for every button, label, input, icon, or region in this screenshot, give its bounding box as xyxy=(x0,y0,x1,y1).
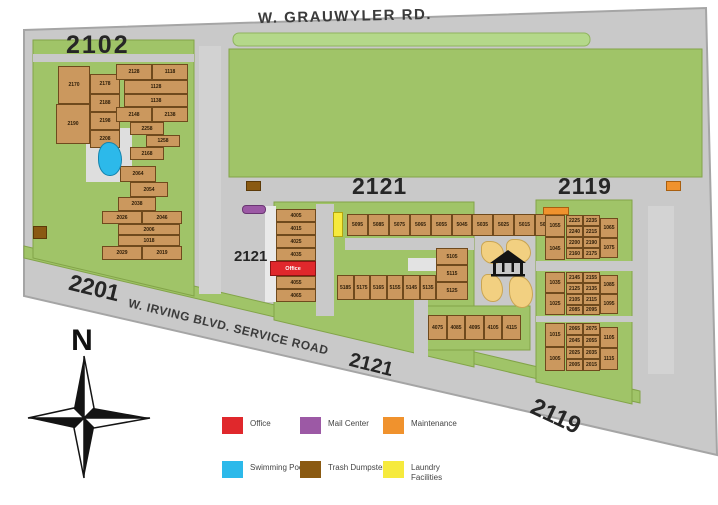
bldg-2119-mid-unit: 2125 xyxy=(566,283,583,294)
bldg-2102-south-unit: 2019 xyxy=(142,246,182,260)
bldg-2121-top-row-unit: 5025 xyxy=(493,214,514,236)
bldg-2121-office-col-unit: 4065 xyxy=(276,289,316,302)
bldg-2121-mid-row-unit: 5165 xyxy=(370,275,387,300)
bldg-2121-top-row-unit: 5055 xyxy=(431,214,452,236)
bldg-2119-south-unit: 1005 xyxy=(545,347,565,371)
bldg-2102-south-unit: 1018 xyxy=(118,235,180,246)
block-label-2102: 2102 xyxy=(66,33,130,58)
bldg-2102-south-unit: 2046 xyxy=(142,211,182,224)
compass-north-label: N xyxy=(71,324,93,357)
road-label-2121: 2121 xyxy=(352,175,407,198)
bldg-2102-east-unit: 2168 xyxy=(130,147,164,160)
legend-item-laundry: Laundry Facilities xyxy=(383,461,469,483)
bldg-2119-mid-unit: 2135 xyxy=(583,283,600,294)
bldg-2102-south-unit: 2054 xyxy=(130,182,168,197)
amenity-area xyxy=(509,276,533,308)
bldg-2121-mid-row-unit: 5105 xyxy=(436,248,468,265)
bldg-2119-north-unit: 1045 xyxy=(545,237,565,260)
bldg-2121-mid-row-unit: 5185 xyxy=(337,275,354,300)
bldg-2102-west-unit: 2190 xyxy=(56,104,90,144)
legend-label: Trash Dumpster xyxy=(328,461,386,473)
bldg-2121-top-row-unit: 5015 xyxy=(514,214,535,236)
bldg-2102-south-unit: 2006 xyxy=(118,224,180,235)
bldg-2121-mid-row-unit: 5155 xyxy=(387,275,403,300)
bldg-2119-south-unit: 1105 xyxy=(600,327,618,348)
mail-center xyxy=(242,205,266,214)
bldg-2121-top-row-unit: 5035 xyxy=(472,214,493,236)
bldg-2102-south-unit: 2038 xyxy=(118,197,156,211)
bldg-2121-office-col-unit: 4035 xyxy=(276,248,316,261)
legend-item-swimming-pool: Swimming Pool xyxy=(222,461,308,478)
bldg-2121-mid-row-unit: 5125 xyxy=(436,282,468,300)
bldg-2121-mid-row-unit: 5135 xyxy=(420,275,436,300)
bldg-2119-north-unit: 2225 xyxy=(566,215,583,226)
bldg-2119-south-unit: 2035 xyxy=(583,347,600,359)
bldg-2119-north-unit: 1065 xyxy=(600,218,618,238)
bldg-2102-east-unit: 1128 xyxy=(124,80,188,94)
bldg-2102-east-unit: 2138 xyxy=(152,107,188,122)
bldg-2121-top-row-unit: 5065 xyxy=(410,214,431,236)
bldg-2121-south-row-unit: 4115 xyxy=(502,315,521,340)
maintenance-shed xyxy=(543,207,569,215)
bldg-2119-south-unit: 2045 xyxy=(566,335,583,347)
bldg-2121-south-row-unit: 4085 xyxy=(447,315,465,340)
bldg-2119-mid-unit: 1035 xyxy=(545,272,565,293)
legend-label: Mail Center xyxy=(328,417,386,429)
office: Office xyxy=(270,261,316,276)
bldg-2119-north-unit: 1075 xyxy=(600,238,618,258)
bldg-2119-mid-unit: 2105 xyxy=(566,294,583,305)
apartment-site-map: 2170217821882190219822082128111811281138… xyxy=(0,0,718,505)
laundry-facility xyxy=(333,212,343,237)
bldg-2121-south-row-unit: 4075 xyxy=(428,315,447,340)
trash-dumpster xyxy=(33,226,47,239)
bldg-2121-mid-row-unit: 5175 xyxy=(354,275,370,300)
bldg-2102-south-unit: 2026 xyxy=(102,211,142,224)
bldg-2121-office-col-unit: 4015 xyxy=(276,222,316,235)
bldg-2121-south-row-unit: 4095 xyxy=(465,315,484,340)
bldg-2119-south-unit: 2025 xyxy=(566,347,583,359)
bldg-2121-office-col-unit: 4055 xyxy=(276,276,316,289)
maintenance-swatch xyxy=(383,417,404,434)
bldg-2119-north-unit: 2235 xyxy=(583,215,600,226)
bldg-2102-east-unit: 2128 xyxy=(116,64,152,80)
bldg-2119-south-unit: 1015 xyxy=(545,323,565,347)
legend-item-maintenance: Maintenance xyxy=(383,417,469,434)
bldg-2119-mid-unit: 2085 xyxy=(566,305,583,315)
mail-center-swatch xyxy=(300,417,321,434)
bldg-2121-office-col-unit: 4005 xyxy=(276,209,316,222)
bldg-2119-north-unit: 2190 xyxy=(583,237,600,248)
bldg-2121-office-col-unit: 4025 xyxy=(276,235,316,248)
bldg-2119-north-unit: 2175 xyxy=(583,248,600,259)
bldg-2119-mid-unit: 1095 xyxy=(600,294,618,314)
parking-label-2121: 2121 xyxy=(234,249,267,264)
bldg-2121-mid-row-unit: 5145 xyxy=(403,275,420,300)
legend-label: Laundry Facilities xyxy=(411,461,469,483)
bldg-2102-east-unit: 1118 xyxy=(152,64,188,80)
bldg-2119-south-unit: 2005 xyxy=(566,359,583,371)
bldg-2119-mid-unit: 2115 xyxy=(583,294,600,305)
bldg-2119-south-unit: 1115 xyxy=(600,348,618,370)
amenity-area xyxy=(481,274,503,302)
trash-dumpster-swatch xyxy=(300,461,321,478)
bldg-2119-south-unit: 2065 xyxy=(566,323,583,335)
bldg-2119-mid-unit: 1085 xyxy=(600,275,618,294)
bldg-2119-north-unit: 2240 xyxy=(566,226,583,237)
bldg-2119-mid-unit: 1025 xyxy=(545,293,565,315)
trash-dumpster xyxy=(246,181,261,191)
bldg-2102-east-unit: 2258 xyxy=(130,122,164,135)
maintenance-shed xyxy=(666,181,681,191)
compass-rose: N xyxy=(26,318,158,483)
bldg-2119-mid-unit: 2095 xyxy=(583,305,600,315)
bldg-2119-north-unit: 2200 xyxy=(566,237,583,248)
bldg-2121-top-row-unit: 5095 xyxy=(347,214,368,236)
legend-item-office: Office xyxy=(222,417,308,434)
legend-item-mail-center: Mail Center xyxy=(300,417,386,434)
swimming-pool xyxy=(98,142,122,176)
bldg-2121-top-row-unit: 5085 xyxy=(368,214,389,236)
laundry-swatch xyxy=(383,461,404,478)
bldg-2102-east-unit: 2148 xyxy=(116,107,152,122)
bldg-2119-south-unit: 2055 xyxy=(583,335,600,347)
bldg-2102-east-unit: 1138 xyxy=(124,94,188,107)
bldg-2121-mid-row-unit: 5115 xyxy=(436,265,468,282)
road-label-2119: 2119 xyxy=(558,175,612,198)
bldg-2119-north-unit: 1055 xyxy=(545,215,565,237)
bldg-2119-south-unit: 2075 xyxy=(583,323,600,335)
bldg-2119-north-unit: 2160 xyxy=(566,248,583,259)
bldg-2121-south-row-unit: 4105 xyxy=(484,315,502,340)
bldg-2119-mid-unit: 2145 xyxy=(566,272,583,283)
legend-label: Maintenance xyxy=(411,417,469,429)
bldg-2121-top-row-unit: 5075 xyxy=(389,214,410,236)
street-label-grauwyler: W. GRAUWYLER RD. xyxy=(258,7,432,26)
legend-item-trash-dumpster: Trash Dumpster xyxy=(300,461,386,478)
bldg-2119-mid-unit: 2155 xyxy=(583,272,600,283)
office-swatch xyxy=(222,417,243,434)
bldg-2119-south-unit: 2015 xyxy=(583,359,600,371)
bldg-2102-south-unit: 2064 xyxy=(120,166,156,182)
bldg-2102-east-unit: 1258 xyxy=(146,135,180,147)
bldg-2121-top-row-unit: 5045 xyxy=(452,214,472,236)
gazebo-icon xyxy=(490,250,526,278)
bldg-2119-north-unit: 2215 xyxy=(583,226,600,237)
bldg-2102-south-unit: 2029 xyxy=(102,246,142,260)
bldg-2102-west-unit: 2170 xyxy=(58,66,90,104)
swimming-pool-swatch xyxy=(222,461,243,478)
